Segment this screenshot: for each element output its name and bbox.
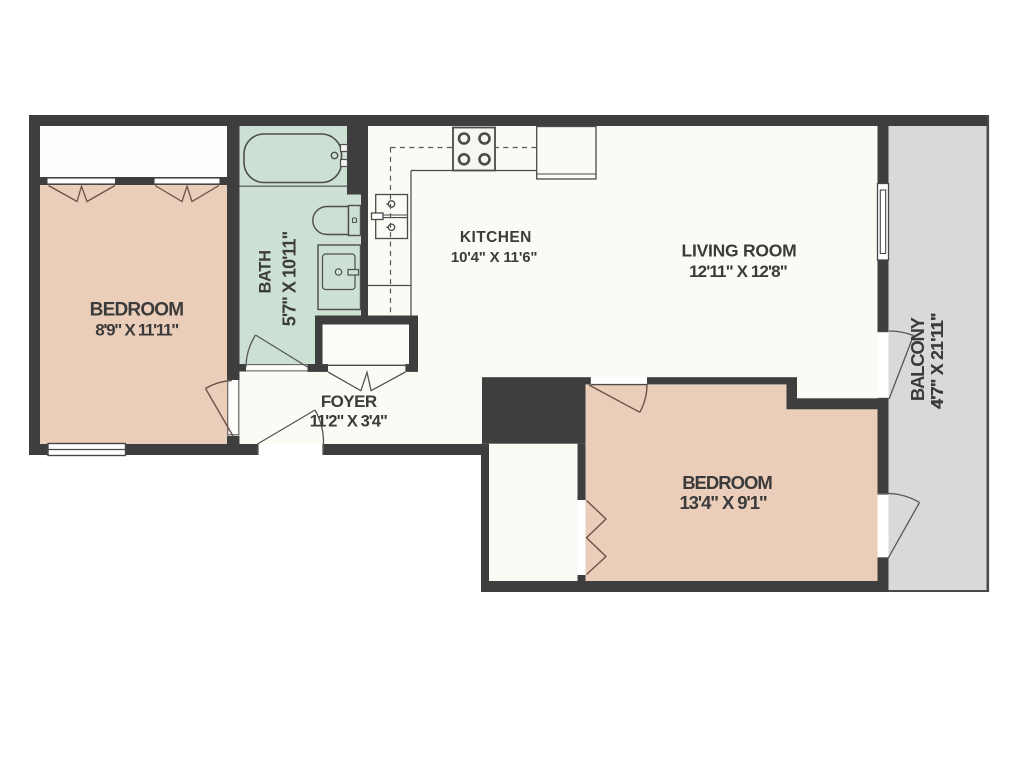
svg-text:FOYER: FOYER	[321, 392, 377, 411]
svg-text:BEDROOM: BEDROOM	[90, 299, 184, 320]
svg-text:10'4" X 11'6": 10'4" X 11'6"	[451, 249, 537, 266]
svg-text:13'4" X 9'1": 13'4" X 9'1"	[679, 492, 766, 513]
svg-text:BATH: BATH	[256, 250, 274, 293]
svg-text:8'9" X 11'11": 8'9" X 11'11"	[95, 320, 178, 339]
svg-text:11'2" X 3'4": 11'2" X 3'4"	[310, 413, 387, 431]
svg-text:BEDROOM: BEDROOM	[682, 472, 772, 493]
svg-text:LIVING ROOM: LIVING ROOM	[682, 240, 797, 260]
svg-text:BALCONY: BALCONY	[907, 316, 928, 401]
svg-text:KITCHEN: KITCHEN	[460, 229, 532, 246]
svg-text:5'7" X 10'11": 5'7" X 10'11"	[280, 231, 300, 326]
svg-text:12'11" X 12'8": 12'11" X 12'8"	[689, 262, 787, 281]
svg-text:4'7" X 21'11": 4'7" X 21'11"	[927, 313, 947, 409]
